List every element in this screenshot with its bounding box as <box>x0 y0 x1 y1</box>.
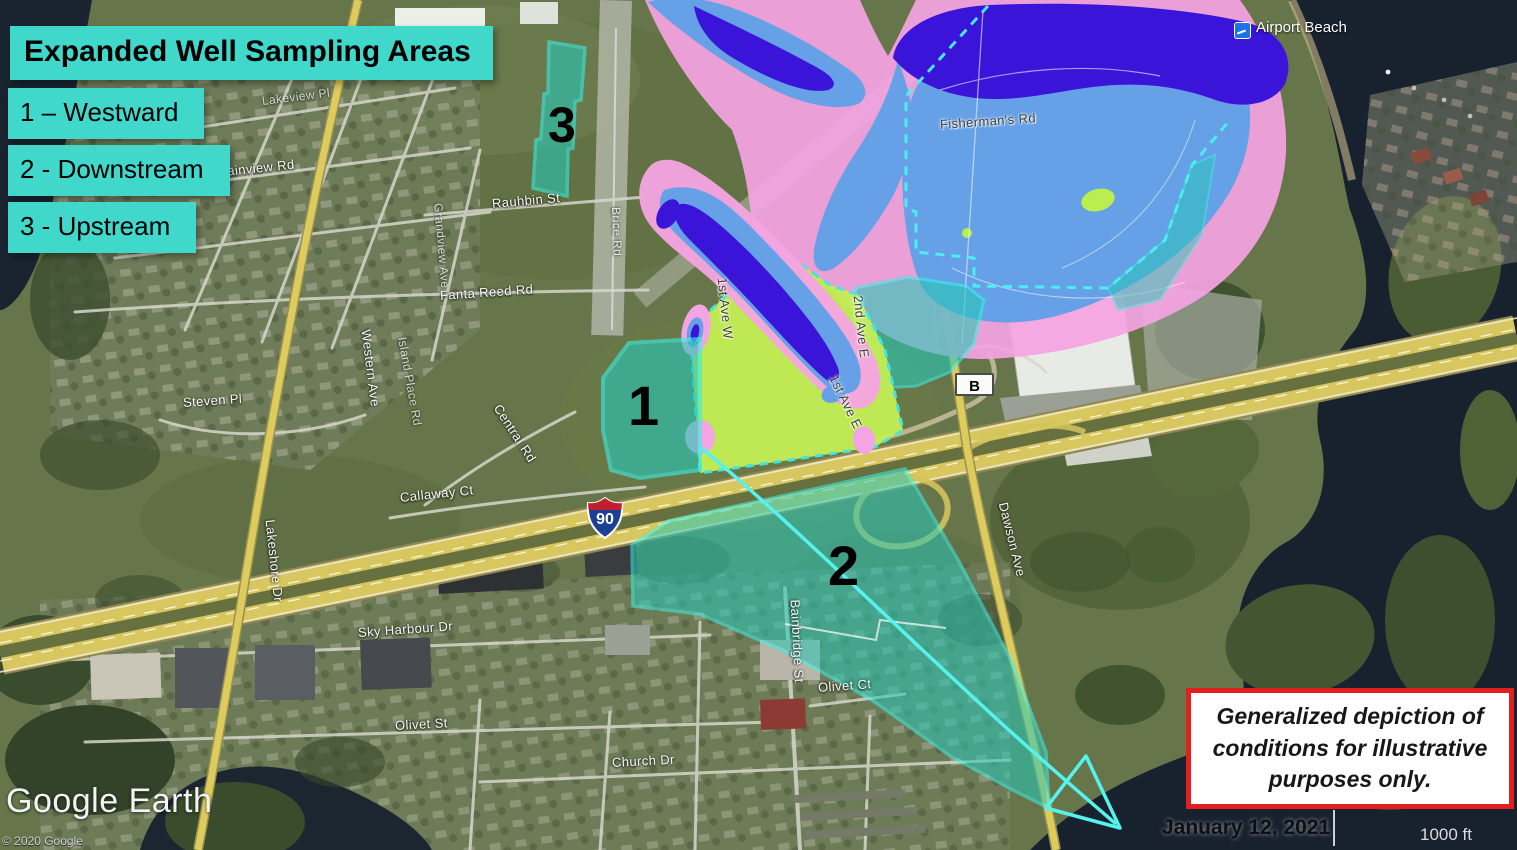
scale-bar-tick <box>1333 810 1335 846</box>
legend-item-upstream: 3 - Upstream <box>8 202 196 253</box>
imagery-date: January 12, 2021 <box>1162 816 1330 840</box>
legend-item-downstream: 2 - Downstream <box>8 145 230 196</box>
google-earth-map[interactable]: Lakeview Pl Plainview Rd Rauhbin St Gran… <box>0 0 1517 850</box>
page-title: Expanded Well Sampling Areas <box>10 26 493 80</box>
sampling-area-1-westward <box>603 339 700 478</box>
disclaimer-note: Generalized depiction of conditions for … <box>1186 688 1514 809</box>
legend-item-westward: 1 – Westward <box>8 88 204 139</box>
copyright-notice: © 2020 Google <box>2 834 83 848</box>
google-earth-logo: Google Earth <box>6 782 212 821</box>
scale-label: 1000 ft <box>1420 825 1472 845</box>
